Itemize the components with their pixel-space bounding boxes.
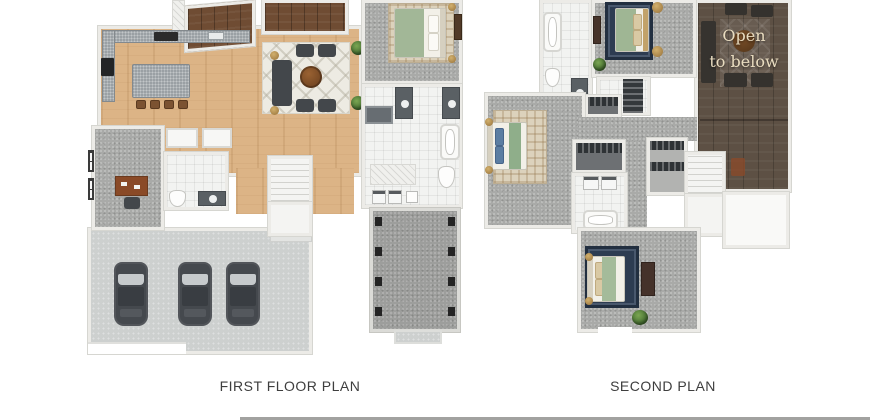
nightstand <box>652 2 663 13</box>
bed <box>394 8 446 58</box>
closet-floor <box>370 164 416 185</box>
second-floor-plan: Open to below <box>485 0 797 362</box>
bed-headboard <box>588 257 593 301</box>
porch-post <box>448 277 455 286</box>
car <box>114 262 148 326</box>
bar-stool <box>178 100 188 109</box>
bed-pillow <box>428 33 439 51</box>
porch-post <box>375 307 382 316</box>
deck <box>185 0 255 52</box>
door-opening <box>598 327 632 336</box>
bathtub <box>543 12 562 52</box>
desk <box>115 176 148 196</box>
nightstand <box>652 46 663 57</box>
hallway-carpet <box>625 141 647 237</box>
table-lamp <box>270 51 279 60</box>
porch-post <box>448 307 455 316</box>
bed-blanket <box>395 9 424 57</box>
utility-sink <box>406 191 418 203</box>
armchair <box>296 99 314 112</box>
closet-clothes-rack <box>576 143 622 153</box>
potted-plant <box>632 310 648 325</box>
bar-stool <box>150 100 160 109</box>
bathtub-basin <box>445 129 455 155</box>
desk-item <box>134 185 140 189</box>
deck-railing <box>172 0 185 32</box>
bed <box>587 256 625 302</box>
armchair-below <box>724 73 747 87</box>
closet-clothes-rack <box>650 141 684 150</box>
first-floor-plan-label: FIRST FLOOR PLAN <box>100 378 480 394</box>
car <box>226 262 260 326</box>
porch-post <box>448 217 455 226</box>
armchair <box>318 44 336 57</box>
pantry-closet <box>166 128 198 148</box>
fireplace-below <box>731 158 745 176</box>
bathtub-basin <box>588 215 613 225</box>
desk-item <box>121 182 127 186</box>
deck <box>262 0 348 34</box>
table-lamp <box>270 106 279 115</box>
porch-post <box>375 277 382 286</box>
porch-post <box>448 247 455 256</box>
porch-post <box>375 247 382 256</box>
armchair-below <box>751 5 773 17</box>
bed-headboard <box>440 9 445 57</box>
refrigerator <box>101 58 114 76</box>
annotation-line: Open <box>698 23 790 49</box>
powder-vanity <box>198 191 226 206</box>
bathtub <box>440 124 460 160</box>
car-roof <box>230 287 256 306</box>
bar-stool <box>136 100 146 109</box>
front-step <box>394 330 442 344</box>
car <box>178 262 212 326</box>
bed-post <box>485 118 493 126</box>
open-to-below-annotation: Open to below <box>698 23 790 75</box>
car-rear-window <box>120 309 142 317</box>
dresser <box>641 262 655 296</box>
bathtub <box>583 210 618 230</box>
first-floor-plan <box>88 0 466 368</box>
bed-post <box>585 253 593 261</box>
porch-post <box>375 217 382 226</box>
car-roof <box>182 287 208 306</box>
bed-pillow <box>495 128 504 146</box>
kitchen-island <box>132 64 190 98</box>
car-roof <box>118 287 144 306</box>
closet-clothes-rack <box>623 79 643 113</box>
washer <box>372 190 386 204</box>
cooktop <box>154 32 178 41</box>
bathtub-basin <box>548 17 557 47</box>
car-rear-window <box>184 309 206 317</box>
dryer <box>388 190 402 204</box>
window <box>88 178 94 200</box>
armchair-below <box>725 3 747 15</box>
car-windshield <box>182 274 208 285</box>
bed-blanket <box>509 123 521 169</box>
bed-blanket <box>602 257 616 301</box>
car-rear-window <box>232 309 254 317</box>
sink <box>401 100 409 108</box>
bed-post <box>485 166 493 174</box>
armchair <box>296 44 314 57</box>
bathroom-vanity <box>442 87 460 119</box>
closet-clothes-rack <box>588 97 618 106</box>
bed <box>615 8 649 52</box>
entry-porch <box>370 208 460 332</box>
bed-post <box>448 3 456 11</box>
bed <box>487 122 527 170</box>
second-floor-plan-label: SECOND PLAN <box>518 378 808 394</box>
bed-post <box>448 55 456 63</box>
floor-divider <box>700 119 788 121</box>
landing-floor <box>723 192 789 248</box>
closet-clothes-rack <box>650 162 684 171</box>
staircase <box>685 152 725 196</box>
shower <box>365 106 393 124</box>
bed-headboard <box>643 9 648 51</box>
bed-pillow <box>633 14 642 30</box>
bed-pillow <box>495 146 504 164</box>
garage-step-notch <box>88 342 186 354</box>
car-windshield <box>118 274 144 285</box>
potted-plant <box>593 58 606 71</box>
dresser <box>593 16 601 44</box>
annotation-line: to below <box>698 49 790 75</box>
dresser <box>454 14 462 40</box>
coffee-table <box>300 66 322 88</box>
bed-post <box>585 297 593 305</box>
bed-pillow <box>428 15 439 33</box>
sink <box>209 195 217 203</box>
bed-headboard <box>488 123 493 169</box>
window <box>88 150 94 172</box>
sink <box>448 100 456 108</box>
stair-landing <box>268 202 312 236</box>
car-windshield <box>230 274 256 285</box>
kitchen-sink <box>208 32 224 40</box>
staircase <box>268 156 312 204</box>
armchair <box>318 99 336 112</box>
bed-pillow <box>633 30 642 46</box>
bathroom-vanity <box>583 176 599 190</box>
bathroom-vanity <box>601 176 617 190</box>
sofa <box>272 60 292 106</box>
armchair-below <box>751 73 773 87</box>
office-chair <box>124 197 140 209</box>
bar-stool <box>164 100 174 109</box>
bathroom-vanity <box>395 87 413 119</box>
pantry-closet <box>202 128 232 148</box>
